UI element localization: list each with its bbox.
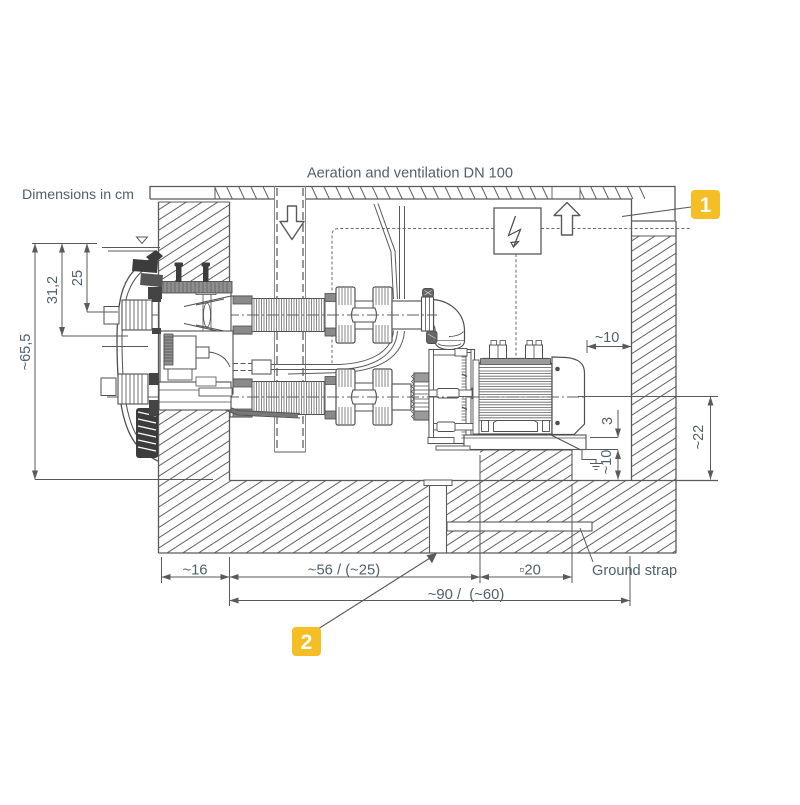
svg-text:~10: ~10	[595, 330, 620, 346]
svg-text:1: 1	[700, 194, 712, 217]
svg-text:~10: ~10	[599, 450, 615, 475]
svg-text:31,2: 31,2	[45, 276, 61, 304]
svg-text:Ground strap: Ground strap	[592, 563, 677, 579]
svg-text:~22: ~22	[691, 425, 707, 450]
svg-text:Aeration and ventilation DN 10: Aeration and ventilation DN 100	[307, 166, 513, 182]
svg-text:~90 / (~60): ~90 / (~60)	[428, 587, 505, 603]
svg-text:3: 3	[600, 417, 616, 425]
svg-text:▫20: ▫20	[519, 563, 541, 579]
svg-text:~65,5: ~65,5	[18, 334, 34, 371]
svg-text:~56 / (~25): ~56 / (~25)	[308, 563, 380, 579]
svg-text:2: 2	[301, 631, 313, 654]
svg-text:~16: ~16	[182, 563, 207, 579]
svg-text:Dimensions in cm: Dimensions in cm	[22, 187, 134, 203]
svg-text:25: 25	[70, 270, 86, 286]
